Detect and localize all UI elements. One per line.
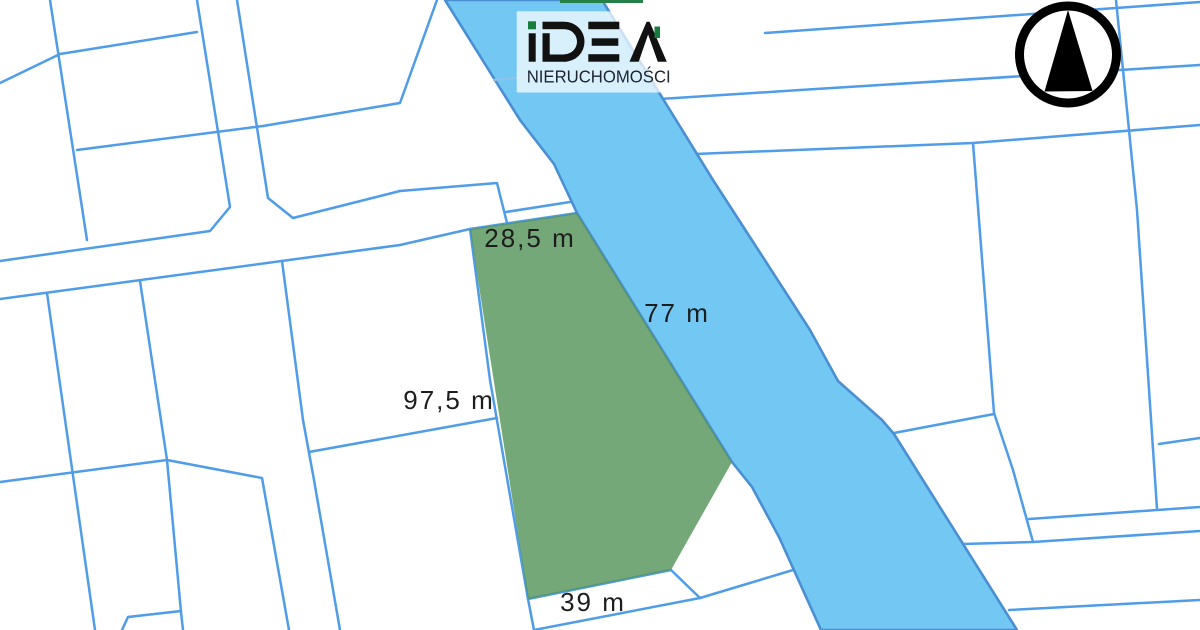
svg-text:NIERUCHOMOŚCI: NIERUCHOMOŚCI	[527, 66, 671, 87]
svg-text:77 m: 77 m	[644, 298, 710, 328]
svg-text:39 m: 39 m	[560, 587, 626, 617]
svg-text:28,5 m: 28,5 m	[484, 223, 576, 253]
svg-text:97,5 m: 97,5 m	[403, 385, 495, 415]
